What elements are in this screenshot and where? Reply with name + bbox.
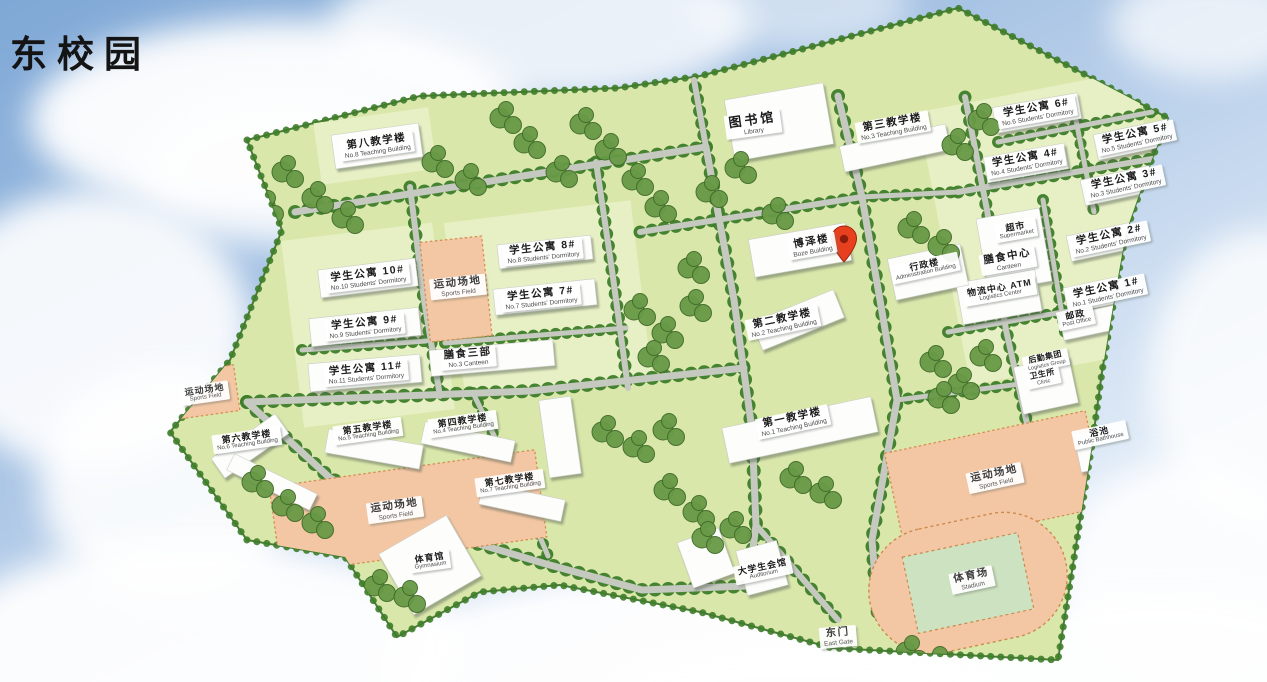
label-en: East Gate [824,638,853,648]
page-title: 东校园 [10,24,151,78]
campus-map-screenshot: 第八教学楼 No.8 Teaching Building图书馆 Library第… [0,0,1267,682]
label-east-gate: 东门 East Gate [819,625,858,649]
campus-map [0,0,1267,682]
